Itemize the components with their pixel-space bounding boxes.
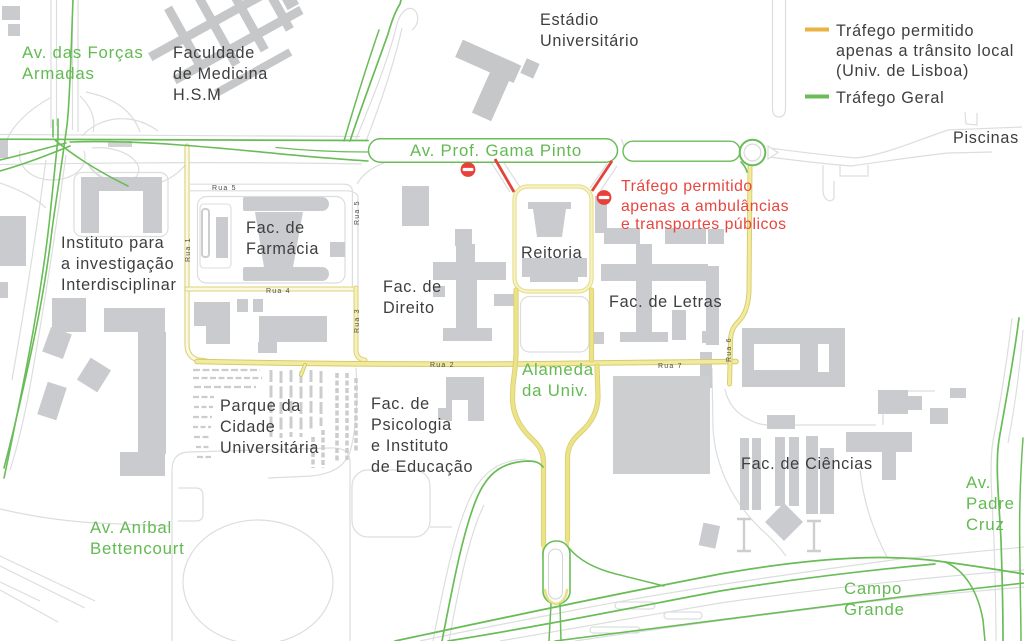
svg-text:Av. Prof. Gama Pinto: Av. Prof. Gama Pinto bbox=[410, 141, 582, 160]
svg-text:Fac. de Letras: Fac. de Letras bbox=[609, 293, 722, 311]
svg-text:Fac. de Ciências: Fac. de Ciências bbox=[741, 455, 873, 473]
svg-text:da Univ.: da Univ. bbox=[522, 381, 589, 400]
svg-text:Faculdade: Faculdade bbox=[173, 44, 255, 62]
svg-text:Universitário: Universitário bbox=[540, 32, 639, 50]
svg-text:de Medicina: de Medicina bbox=[173, 65, 268, 83]
svg-text:Tráfego permitido: Tráfego permitido bbox=[836, 22, 974, 40]
svg-text:Farmácia: Farmácia bbox=[246, 240, 319, 258]
svg-text:Reitoria: Reitoria bbox=[521, 244, 582, 262]
svg-text:apenas a ambulâncias: apenas a ambulâncias bbox=[621, 198, 789, 215]
svg-text:(Univ. de Lisboa): (Univ. de Lisboa) bbox=[836, 62, 969, 80]
svg-text:Tráfego Geral: Tráfego Geral bbox=[836, 89, 944, 107]
svg-text:H.S.M: H.S.M bbox=[173, 86, 221, 104]
svg-text:Rua 4: Rua 4 bbox=[266, 288, 291, 295]
svg-text:Direito: Direito bbox=[383, 299, 435, 317]
svg-text:apenas a trânsito local: apenas a trânsito local bbox=[836, 42, 1014, 60]
svg-text:Rua 7: Rua 7 bbox=[658, 363, 683, 370]
svg-text:Rua 1: Rua 1 bbox=[185, 237, 192, 262]
svg-text:Alameda: Alameda bbox=[522, 360, 594, 379]
svg-text:e Instituto: e Instituto bbox=[371, 437, 449, 455]
svg-text:Psicologia: Psicologia bbox=[371, 416, 452, 434]
svg-text:Armadas: Armadas bbox=[22, 64, 95, 83]
svg-text:Piscinas: Piscinas bbox=[953, 129, 1019, 147]
svg-text:e transportes públicos: e transportes públicos bbox=[621, 216, 787, 233]
svg-text:Rua 5: Rua 5 bbox=[212, 185, 237, 192]
svg-text:a investigação: a investigação bbox=[61, 255, 174, 273]
svg-text:Interdisciplinar: Interdisciplinar bbox=[61, 276, 177, 294]
svg-text:Fac. de: Fac. de bbox=[246, 219, 305, 237]
svg-text:Campo: Campo bbox=[844, 579, 902, 598]
svg-text:Av. das Forças: Av. das Forças bbox=[22, 43, 144, 62]
svg-text:Rua 6: Rua 6 bbox=[726, 337, 733, 362]
svg-text:Cidade: Cidade bbox=[220, 418, 276, 436]
svg-text:Rua 2: Rua 2 bbox=[430, 362, 455, 369]
svg-text:Rua 5: Rua 5 bbox=[354, 200, 361, 225]
svg-text:Tráfego permitido: Tráfego permitido bbox=[621, 178, 753, 195]
svg-text:Parque da: Parque da bbox=[220, 397, 301, 415]
svg-text:Bettencourt: Bettencourt bbox=[90, 539, 185, 558]
svg-text:Padre: Padre bbox=[966, 494, 1015, 513]
svg-text:Fac. de: Fac. de bbox=[371, 395, 430, 413]
svg-text:Av.: Av. bbox=[966, 473, 991, 492]
svg-text:Fac. de: Fac. de bbox=[383, 278, 442, 296]
svg-text:Cruz: Cruz bbox=[966, 515, 1005, 534]
svg-text:Universitária: Universitária bbox=[220, 439, 319, 457]
svg-text:Instituto para: Instituto para bbox=[61, 234, 164, 252]
svg-text:Rua 3: Rua 3 bbox=[354, 308, 361, 333]
svg-text:Grande: Grande bbox=[844, 600, 905, 619]
svg-text:Estádio: Estádio bbox=[540, 11, 599, 29]
svg-text:de Educação: de Educação bbox=[371, 458, 473, 476]
svg-text:Av. Aníbal: Av. Aníbal bbox=[90, 518, 172, 537]
